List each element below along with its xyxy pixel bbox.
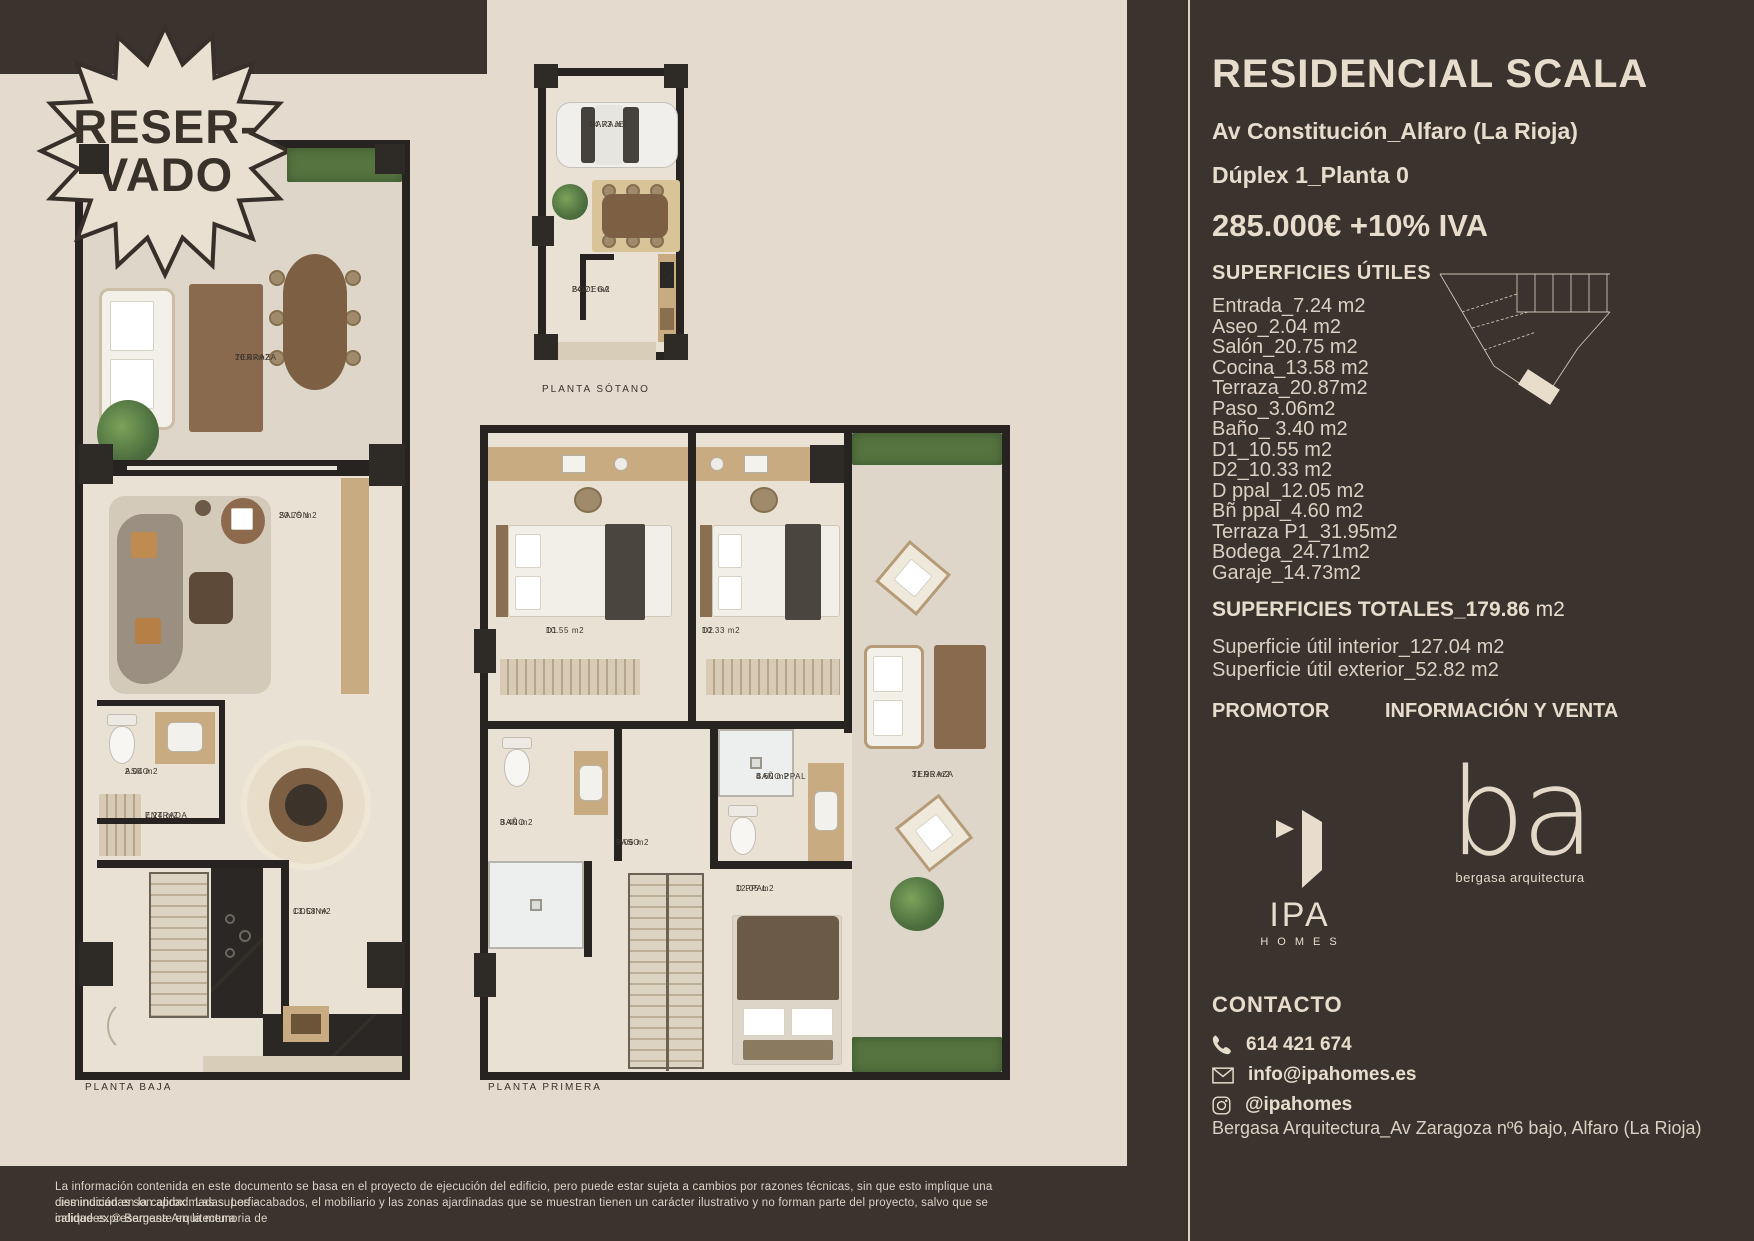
flyer-page: GARAJE14.73 m2 BODEGA24.71 m2 PLANTA SÓT… xyxy=(0,0,1754,1241)
armchair xyxy=(221,498,265,544)
entry-closet xyxy=(99,794,141,856)
shower xyxy=(488,861,584,949)
bath-ppal-sink xyxy=(808,763,844,861)
stairs xyxy=(628,873,704,1069)
bath-sink xyxy=(574,751,608,815)
superficie-item: Aseo_2.04 m2 xyxy=(1212,317,1398,338)
superficies-totales: SUPERFICIES TOTALES_179.86 m2 xyxy=(1212,598,1565,622)
bed-headboard xyxy=(496,525,508,617)
floor-strip xyxy=(203,1056,402,1072)
reservado-badge: RESER- VADO xyxy=(36,22,294,280)
badge-line2: VADO xyxy=(97,152,233,198)
instagram-icon xyxy=(1212,1096,1231,1115)
cooktop xyxy=(660,262,674,288)
ipa-logo-icon xyxy=(1274,808,1326,894)
footer-bar: La información contenida en este documen… xyxy=(0,1166,1754,1241)
wall-pillar xyxy=(532,216,554,246)
unit-line: Dúplex 1_Planta 0 xyxy=(1212,162,1409,189)
contacto-heading: CONTACTO xyxy=(1212,992,1343,1018)
terrace-rug xyxy=(934,645,986,749)
salon-sofa xyxy=(117,514,183,684)
promotor-heading: PROMOTOR xyxy=(1212,700,1329,723)
bed-headboard xyxy=(700,525,712,617)
phone-link[interactable]: 614 421 674 xyxy=(1212,1034,1352,1056)
kitchen-island xyxy=(211,862,263,1018)
bed-dppal xyxy=(732,915,842,1065)
cabinet xyxy=(660,308,674,330)
wall-pillar xyxy=(534,64,558,88)
superficie-item: Entrada_7.24 m2 xyxy=(1212,296,1398,317)
superficies-heading: SUPERFICIES ÚTILES xyxy=(1212,262,1431,285)
bed-d1 xyxy=(508,525,672,617)
wardrobe-d2 xyxy=(706,659,840,695)
building-locator-plan xyxy=(1432,268,1612,418)
floor-lamp xyxy=(195,500,211,516)
plan-title-primera: PLANTA PRIMERA xyxy=(488,1082,602,1093)
price-line: 285.000€ +10% IVA xyxy=(1212,208,1488,244)
disclaimer-line3: calidades. © Bergasa Arquitectura xyxy=(55,1212,1020,1228)
superficie-item: Cocina_13.58 m2 xyxy=(1212,358,1398,379)
plant-icon xyxy=(890,877,944,931)
plant-icon xyxy=(552,184,588,220)
totales-value: SUPERFICIES TOTALES_179.86 xyxy=(1212,598,1530,621)
stairs xyxy=(149,872,209,1018)
plan-title-baja: PLANTA BAJA xyxy=(85,1082,172,1093)
superficie-item: D2_10.33 m2 xyxy=(1212,460,1398,481)
wall-pillar xyxy=(534,334,558,360)
bed-d2 xyxy=(712,525,840,617)
superficie-exterior: Superficie útil exterior_52.82 m2 xyxy=(1212,659,1499,682)
wardrobe-d1 xyxy=(500,659,640,695)
desk-d1 xyxy=(488,447,688,481)
superficie-item: Terraza_20.87m2 xyxy=(1212,378,1398,399)
terrace-table xyxy=(283,254,347,390)
ipa-logo-text: IPA xyxy=(1240,898,1360,932)
email-link[interactable]: info@ipahomes.es xyxy=(1212,1064,1416,1086)
dining-table xyxy=(602,194,668,238)
floor-strip xyxy=(546,342,656,360)
car: GARAJE14.73 m2 xyxy=(556,102,678,168)
wall-pillar xyxy=(664,64,688,88)
page-title: RESIDENCIAL SCALA xyxy=(1212,52,1648,97)
aseo-sink-counter xyxy=(155,712,215,764)
superficie-item: Paso_3.06m2 xyxy=(1212,399,1398,420)
window-glass xyxy=(127,466,337,470)
terrace-floor xyxy=(852,433,1002,1072)
panel-separator-line xyxy=(1188,0,1190,1241)
envelope-icon xyxy=(1212,1067,1234,1084)
totales-unit: m2 xyxy=(1530,598,1565,621)
superficies-list: Entrada_7.24 m2 Aseo_2.04 m2 Salón_20.75… xyxy=(1212,296,1398,583)
kitchen-sink xyxy=(283,1006,329,1042)
door-arc xyxy=(107,998,163,1054)
superficie-item: Terraza P1_31.95m2 xyxy=(1212,522,1398,543)
superficie-item: D ppal_12.05 m2 xyxy=(1212,481,1398,502)
superficie-interior: Superficie útil interior_127.04 m2 xyxy=(1212,636,1504,659)
coffee-table xyxy=(189,572,233,624)
superficie-item: Bodega_24.71m2 xyxy=(1212,542,1398,563)
superficie-item: Bñ ppal_4.60 m2 xyxy=(1212,501,1398,522)
architect-line: Bergasa Arquitectura_Av Zaragoza nº6 baj… xyxy=(1212,1118,1702,1139)
terrace-sofa xyxy=(864,645,924,749)
plan-title-sotano: PLANTA SÓTANO xyxy=(542,384,650,395)
wall-pillar xyxy=(664,334,688,360)
plan-baja: TERRAZA20.87m2 SALÓN20.75 m2 xyxy=(75,140,410,1080)
ba-logo-text: ba xyxy=(1420,760,1620,868)
superficie-item: D1_10.55 m2 xyxy=(1212,440,1398,461)
bergasa-logo: ba bergasa arquitectura xyxy=(1420,760,1620,885)
plan-primera: TERRAZA31.95 m2 D110.55 m2 xyxy=(480,425,1010,1080)
phone-number: 614 421 674 xyxy=(1246,1034,1352,1056)
venta-heading: INFORMACIÓN Y VENTA xyxy=(1385,700,1618,723)
sideboard xyxy=(341,478,369,694)
superficie-item: Salón_20.75 m2 xyxy=(1212,337,1398,358)
address-line: Av Constitución_Alfaro (La Rioja) xyxy=(1212,118,1578,145)
instagram-handle: @ipahomes xyxy=(1245,1094,1352,1116)
round-table xyxy=(269,768,343,842)
phone-icon xyxy=(1212,1035,1232,1055)
ipa-logo-subtext: HOMES xyxy=(1240,936,1360,948)
superficie-item: Garaje_14.73m2 xyxy=(1212,563,1398,584)
instagram-link[interactable]: @ipahomes xyxy=(1212,1094,1352,1116)
superficie-item: Baño_ 3.40 m2 xyxy=(1212,419,1398,440)
hedge-icon xyxy=(852,433,1002,465)
email-address: info@ipahomes.es xyxy=(1248,1064,1416,1086)
ipa-homes-logo: IPA HOMES xyxy=(1240,808,1360,948)
shower-ppal xyxy=(718,729,794,797)
hedge-icon xyxy=(852,1037,1002,1072)
plan-sotano: GARAJE14.73 m2 BODEGA24.71 m2 xyxy=(538,68,684,360)
